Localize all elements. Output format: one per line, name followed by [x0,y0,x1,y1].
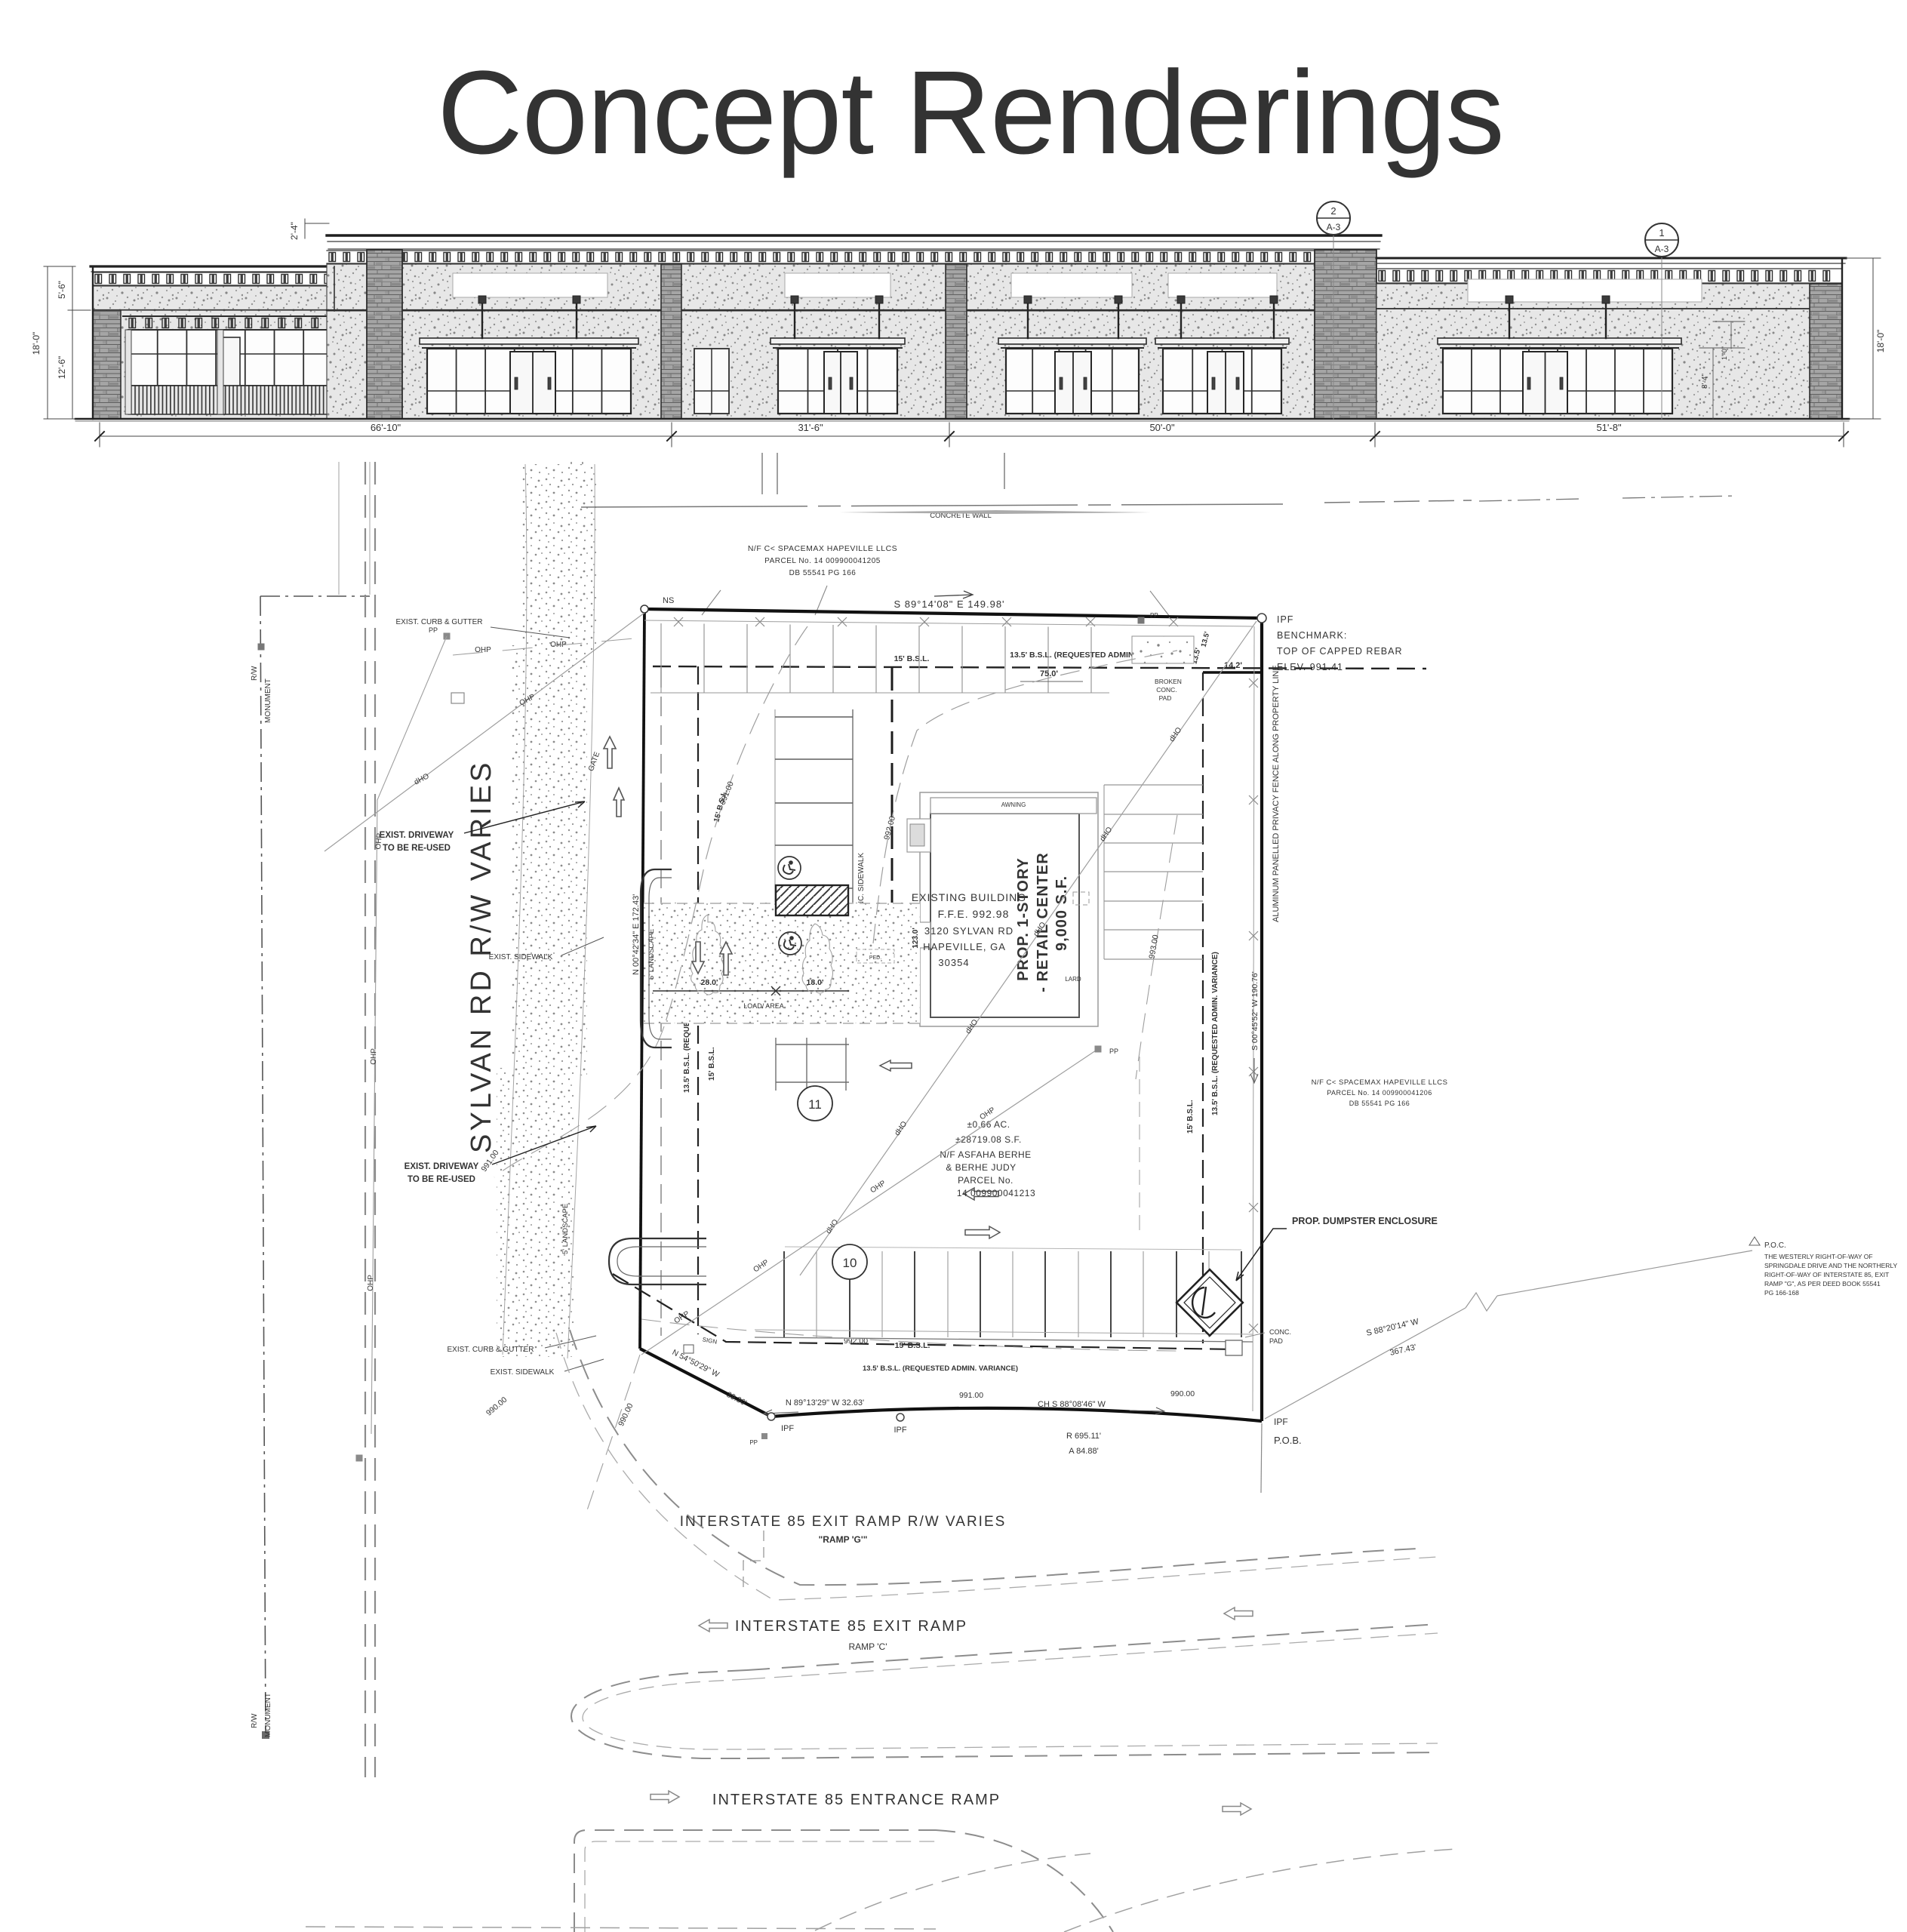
svg-text:5'-6": 5'-6" [57,281,67,299]
svg-text:MONUMENT: MONUMENT [264,678,272,723]
svg-text:F.F.E. 992.98: F.F.E. 992.98 [938,908,1010,920]
svg-text:TO BE RE-USED: TO BE RE-USED [408,1175,475,1184]
svg-text:PP: PP [749,1439,758,1446]
svg-text:THE WESTERLY RIGHT-OF-WAY OF: THE WESTERLY RIGHT-OF-WAY OF [1764,1253,1873,1260]
svg-text:30354: 30354 [938,957,969,968]
svg-text:13.5' B.S.L. (REQUESTED ADMIN.: 13.5' B.S.L. (REQUESTED ADMIN. VARIANCE) [1211,952,1220,1115]
svg-text:PP: PP [429,626,438,634]
svg-text:& BERHE JUDY: & BERHE JUDY [946,1162,1016,1173]
svg-text:51'-8": 51'-8" [1596,422,1622,433]
svg-text:RAMP 'C': RAMP 'C' [848,1641,887,1652]
svg-text:18.0': 18.0' [807,978,824,987]
svg-text:N/F C< SPACEMAX HAPEVILLE LLCS: N/F C< SPACEMAX HAPEVILLE LLCS [1312,1078,1448,1087]
svg-text:S 00°45'52" W 190.76': S 00°45'52" W 190.76' [1250,971,1260,1051]
svg-text:1'-0": 1'-0" [1721,346,1728,360]
svg-text:RIGHT-OF-WAY OF INTERSTATE 85,: RIGHT-OF-WAY OF INTERSTATE 85, EXIT [1764,1271,1889,1278]
svg-text:OHP: OHP [367,1275,376,1291]
svg-text:LOAD/ AREA: LOAD/ AREA [743,1002,784,1010]
svg-text:18'-0": 18'-0" [31,332,42,355]
svg-text:DB 55541 PG 166: DB 55541 PG 166 [1349,1100,1410,1107]
svg-text:N 89°13'29" W 32.63': N 89°13'29" W 32.63' [786,1398,864,1407]
svg-text:15' B.S.L.: 15' B.S.L. [708,1047,716,1081]
svg-text:BENCHMARK:: BENCHMARK: [1277,630,1347,641]
svg-text:PED.: PED. [869,955,881,961]
svg-text:991.00: 991.00 [959,1391,983,1400]
svg-text:15' B.S.L.: 15' B.S.L. [1186,1100,1195,1134]
svg-text:IPF: IPF [781,1424,794,1433]
svg-text:R 695.11': R 695.11' [1066,1432,1101,1441]
svg-text:S 89°14'08" E 149.98': S 89°14'08" E 149.98' [894,598,1004,610]
svg-text:LARD: LARD [1065,976,1081,983]
svg-text:A-3: A-3 [1327,222,1341,232]
svg-text:PARCEL No. 14 009900041205: PARCEL No. 14 009900041205 [764,557,881,565]
svg-text:PARCEL No. 14 009900041206: PARCEL No. 14 009900041206 [1327,1089,1432,1097]
svg-text:15' B.S.L.: 15' B.S.L. [894,654,930,663]
svg-text:INTERSTATE 85 EXIT RAMP R/: INTERSTATE 85 EXIT RAMP R/W VARIES [680,1514,1007,1530]
svg-text:PROP. 1-STORY: PROP. 1-STORY [1015,857,1032,981]
svg-text:NS: NS [663,596,674,605]
svg-text:IPF: IPF [894,1426,906,1435]
svg-text:EXISTING BUILDING: EXISTING BUILDING [912,891,1026,903]
svg-text:N/F ASFAHA BERHE: N/F ASFAHA BERHE [940,1149,1031,1160]
svg-text:14 009900041213: 14 009900041213 [957,1188,1035,1198]
svg-text:TOP OF CAPPED REBAR: TOP OF CAPPED REBAR [1277,646,1403,657]
svg-text:CH S 88°08'46" W: CH S 88°08'46" W [1038,1400,1106,1409]
svg-text:MONUMENT: MONUMENT [264,1693,272,1737]
svg-text:EXIST. SIDEWALK: EXIST. SIDEWALK [491,1368,555,1377]
svg-text:DB 55541 PG 166: DB 55541 PG 166 [789,569,857,577]
svg-text:11: 11 [808,1097,822,1112]
svg-text:8'-4": 8'-4" [1701,374,1709,389]
svg-text:"RAMP 'G'": "RAMP 'G'" [819,1534,868,1545]
svg-text:18'-0": 18'-0" [1875,330,1886,353]
svg-text:10: 10 [843,1256,857,1270]
svg-text:ALUMINUM PANELLED PRIVACY F: ALUMINUM PANELLED PRIVACY FENCE ALONG PR… [1272,665,1281,922]
svg-text:PROP. DUMPSTER ENCLOSURE: PROP. DUMPSTER ENCLOSURE [1292,1216,1438,1226]
svg-text:66'-10": 66'-10" [371,422,401,433]
svg-text:31'-6": 31'-6" [798,422,823,433]
svg-text:PARCEL No.: PARCEL No. [958,1175,1013,1186]
svg-text:12'-6": 12'-6" [57,356,67,380]
svg-text:PG 166-168: PG 166-168 [1764,1289,1799,1297]
svg-text:PP: PP [1109,1048,1118,1055]
svg-text:2: 2 [1330,205,1336,217]
svg-text:PP: PP [1150,612,1158,619]
svg-text:CONC.: CONC. [1269,1328,1291,1336]
svg-text:PAD: PAD [1269,1337,1283,1345]
svg-text:EXIST. DRIVEWAY: EXIST. DRIVEWAY [380,831,454,840]
svg-text:1: 1 [1659,227,1664,238]
svg-text:RAMP "G", AS PER DEED BOOK 555: RAMP "G", AS PER DEED BOOK 55541 [1764,1280,1881,1287]
svg-text:IPF: IPF [1277,614,1293,625]
svg-text:R/W: R/W [251,666,259,681]
svg-text:9,000 S.F.: 9,000 S.F. [1053,875,1070,951]
svg-text:990.00: 990.00 [1170,1389,1195,1398]
svg-text:PAD: PAD [1159,694,1172,702]
svg-text:TO BE RE-USED: TO BE RE-USED [383,844,451,853]
svg-text:EXIST. CURB & GUTTER: EXIST. CURB & GUTTER [447,1346,534,1354]
svg-text:EXIST. CURB & GUTTER: EXIST. CURB & GUTTER [395,618,482,626]
svg-text:A 84.88': A 84.88' [1069,1447,1098,1456]
svg-text:13.5' B.S.L. (REQUESTED ADMIN.: 13.5' B.S.L. (REQUESTED ADMIN. VARIANCE) [863,1364,1018,1373]
svg-text:CONC.: CONC. [1156,686,1176,694]
svg-text:P.O.B.: P.O.B. [1274,1435,1302,1446]
svg-text:N/F C< SPACEMAX HAPEVILLE LLCS: N/F C< SPACEMAX HAPEVILLE LLCS [748,544,897,553]
svg-text:±28719.08 S.F.: ±28719.08 S.F. [955,1134,1022,1145]
svg-text:Concept Renderings: Concept Renderings [437,47,1503,179]
svg-text:INTERSTATE 85 EXIT RAMP: INTERSTATE 85 EXIT RAMP [735,1618,967,1635]
svg-text:HAPEVILLE, GA: HAPEVILLE, GA [923,941,1006,952]
svg-text:EXIST. DRIVEWAY: EXIST. DRIVEWAY [404,1162,479,1171]
svg-text:±0.66 AC.: ±0.66 AC. [967,1119,1010,1130]
svg-text:OHP: OHP [370,1048,379,1065]
svg-text:3120 SYLVAN RD: 3120 SYLVAN RD [924,925,1013,937]
svg-text:P.O.C.: P.O.C. [1764,1241,1786,1250]
svg-text:EXIST. SIDEWALK: EXIST. SIDEWALK [489,953,553,961]
svg-text:123.0': 123.0' [912,928,920,948]
svg-text:75.0': 75.0' [1040,669,1058,678]
svg-text:50'-0": 50'-0" [1149,422,1175,433]
svg-text:R/W: R/W [251,1713,259,1728]
svg-text:28.0': 28.0' [701,978,718,987]
svg-text:SPRINGDALE DRIVE AND THE NORTH: SPRINGDALE DRIVE AND THE NORTHERLY [1764,1262,1898,1269]
svg-text:2'-4": 2'-4" [289,222,300,240]
svg-text:A-3: A-3 [1655,244,1669,254]
svg-text:5' LANDSCAPE: 5' LANDSCAPE [561,1204,570,1254]
svg-text:BROKEN: BROKEN [1155,678,1182,685]
svg-text:N 00°42'34" E 172.43': N 00°42'34" E 172.43' [632,894,641,975]
svg-text:ELEV. 991.41: ELEV. 991.41 [1277,662,1343,672]
svg-text:INTERSTATE 85 ENTRANCE RAMP: INTERSTATE 85 ENTRANCE RAMP [712,1792,1001,1808]
svg-text:IPF: IPF [1274,1417,1288,1427]
svg-text:AWNING: AWNING [1001,801,1026,808]
